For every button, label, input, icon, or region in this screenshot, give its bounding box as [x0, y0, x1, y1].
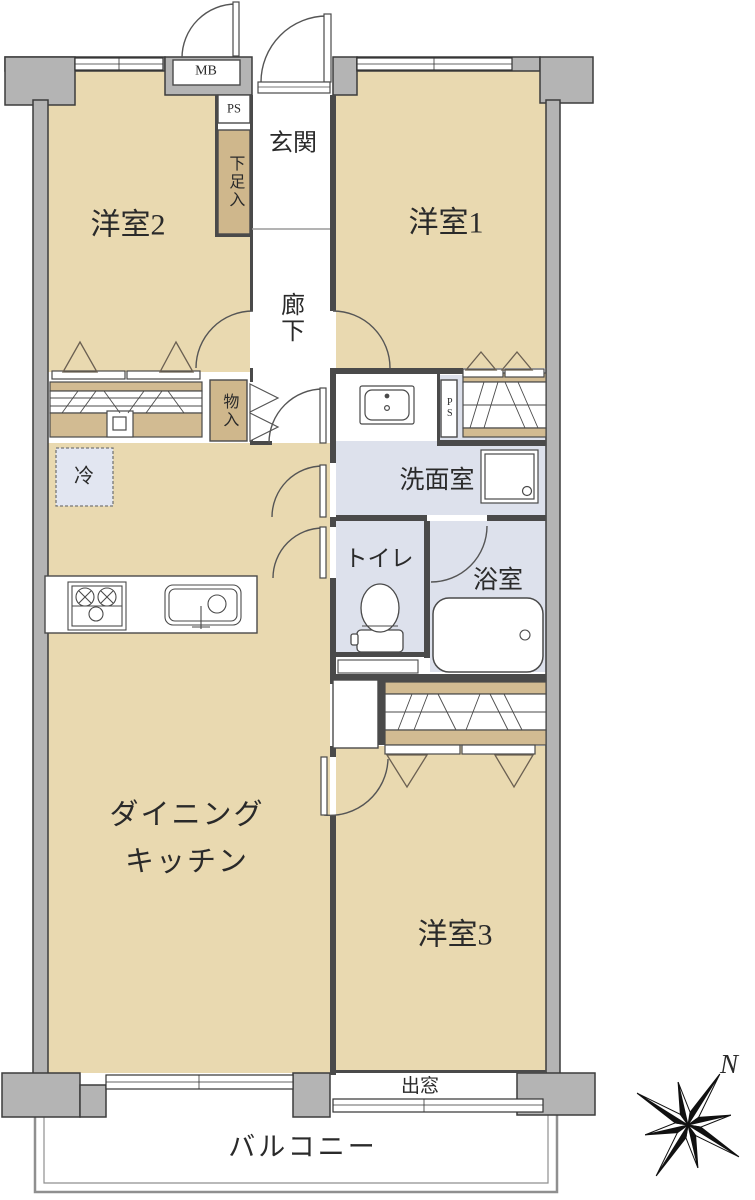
- label-meter-box: MB: [195, 65, 217, 80]
- room-label-dining: ダイニング: [109, 800, 264, 830]
- stove-icon: [68, 582, 126, 630]
- bathtub-icon: [433, 598, 543, 672]
- room-label-entry: 玄関: [269, 131, 317, 156]
- vanity-icon: [360, 386, 414, 424]
- room-label-kitchen: キッチン: [125, 847, 249, 877]
- room-label-western1: 洋室1: [409, 207, 484, 239]
- room-label-toilet: トイレ: [345, 547, 414, 571]
- label-refrigerator: 冷: [74, 467, 94, 488]
- sink-icon: [165, 585, 241, 629]
- closet-west2: [50, 382, 202, 437]
- room-label-washroom: 洗面室: [399, 468, 474, 494]
- washing-machine-pan-icon: [481, 450, 538, 503]
- room-label-western3: 洋室3: [418, 919, 493, 951]
- room-label-bay-window: 出窓: [401, 1077, 439, 1097]
- floor-plan-drawing: [0, 0, 755, 1200]
- compass-north-label: N: [720, 1050, 738, 1078]
- toilet-shelf: [338, 660, 418, 673]
- label-pipe-space-top: PS: [227, 102, 241, 115]
- closet-west3: [385, 682, 546, 745]
- floor-plan: 洋室2 洋室1 洋室3 玄関 廊下 ダイニング キッチン 洗面室 トイレ 浴室 …: [0, 0, 755, 1200]
- closet-west1: [463, 373, 546, 437]
- label-pipe-space-side: PS: [444, 397, 455, 419]
- room-label-corridor: 廊下: [276, 292, 301, 344]
- room-label-balcony: バルコニー: [228, 1133, 377, 1161]
- room-label-bathroom: 浴室: [473, 568, 523, 594]
- folding-door-marks: [250, 384, 278, 441]
- compass-rose-icon: [637, 1074, 739, 1176]
- room-label-western2: 洋室2: [91, 209, 166, 241]
- label-shoe-cabinet: 下足入: [226, 155, 243, 209]
- label-hall-closet: 物入: [220, 393, 237, 429]
